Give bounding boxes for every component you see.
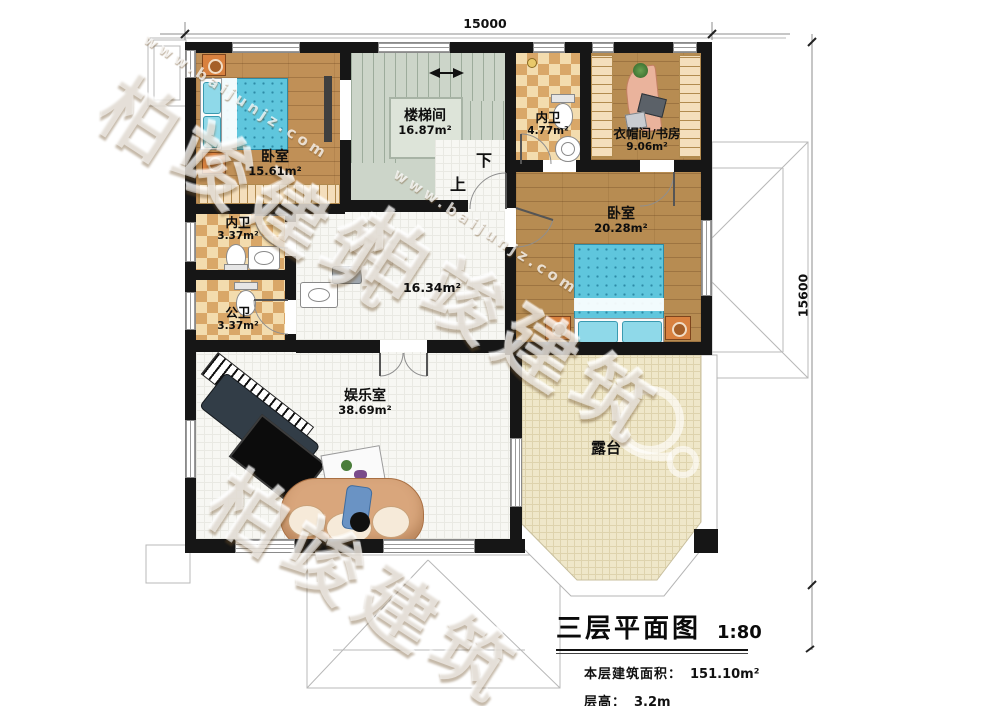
room-label-bathroom-public: 公卫 3.37m² — [198, 306, 278, 332]
room-label-entertainment: 娱乐室 38.69m² — [312, 388, 418, 417]
room-name: 卧室 — [566, 206, 676, 222]
room-area: 16.34m² — [388, 281, 476, 295]
room-name: 内卫 — [198, 216, 278, 230]
room-label-cloakroom-study: 衣帽间/书房 9.06m² — [589, 127, 705, 153]
room-name: 露台 — [574, 440, 638, 457]
room-label-hallway: 16.34m² — [388, 281, 476, 295]
stair-up-label: 上 — [450, 171, 466, 195]
title-underline — [556, 649, 748, 651]
room-name: 公卫 — [198, 306, 278, 320]
room-area: 3.37m² — [198, 320, 278, 332]
dimension-top: 15000 — [452, 16, 518, 31]
title-underline-2 — [556, 653, 748, 654]
floor-area-value: 151.10m² — [690, 667, 759, 682]
room-name: 娱乐室 — [312, 388, 418, 404]
room-name: 内卫 — [512, 111, 584, 125]
floor-height-label: 层高： — [584, 695, 626, 706]
room-area: 9.06m² — [589, 141, 705, 153]
room-label-bedroom-top-left: 卧室 15.61m² — [225, 149, 325, 178]
room-name: 衣帽间/书房 — [589, 127, 705, 141]
overlay-linework — [0, 0, 1000, 706]
room-label-bathroom-top: 内卫 4.77m² — [512, 111, 584, 137]
floor-area-line: 本层建筑面积：151.10m² — [556, 663, 846, 682]
room-label-bedroom-right: 卧室 20.28m² — [566, 206, 676, 235]
title-block: 三层平面图 1:80 本层建筑面积：151.10m² 层高：3.2m — [556, 608, 846, 706]
stair-direction-arrow — [429, 68, 464, 78]
plan-title: 三层平面图 — [556, 608, 701, 645]
floor-height-line: 层高：3.2m — [556, 691, 846, 706]
room-label-terrace: 露台 — [574, 440, 638, 457]
room-label-stairwell: 楼梯间 16.87m² — [371, 108, 479, 137]
room-area: 20.28m² — [566, 222, 676, 235]
floor-plan-canvas: www.baijunjz.com 柏竣建筑 www.baijunjz.com 柏… — [0, 0, 1000, 706]
floor-height-value: 3.2m — [634, 695, 671, 706]
room-name: 卧室 — [225, 149, 325, 165]
room-area: 4.77m² — [512, 125, 584, 137]
room-label-bathroom-mid: 内卫 3.37m² — [198, 216, 278, 242]
room-area: 16.87m² — [371, 124, 479, 137]
plan-title-row: 三层平面图 1:80 — [556, 608, 846, 645]
stair-down-label: 下 — [476, 147, 492, 171]
room-area: 38.69m² — [312, 404, 418, 417]
dimension-right: 15600 — [796, 263, 811, 329]
room-area: 15.61m² — [225, 165, 325, 178]
room-area: 3.37m² — [198, 230, 278, 242]
floor-area-label: 本层建筑面积： — [584, 667, 682, 682]
plan-scale: 1:80 — [717, 622, 762, 645]
room-name: 楼梯间 — [371, 108, 479, 124]
